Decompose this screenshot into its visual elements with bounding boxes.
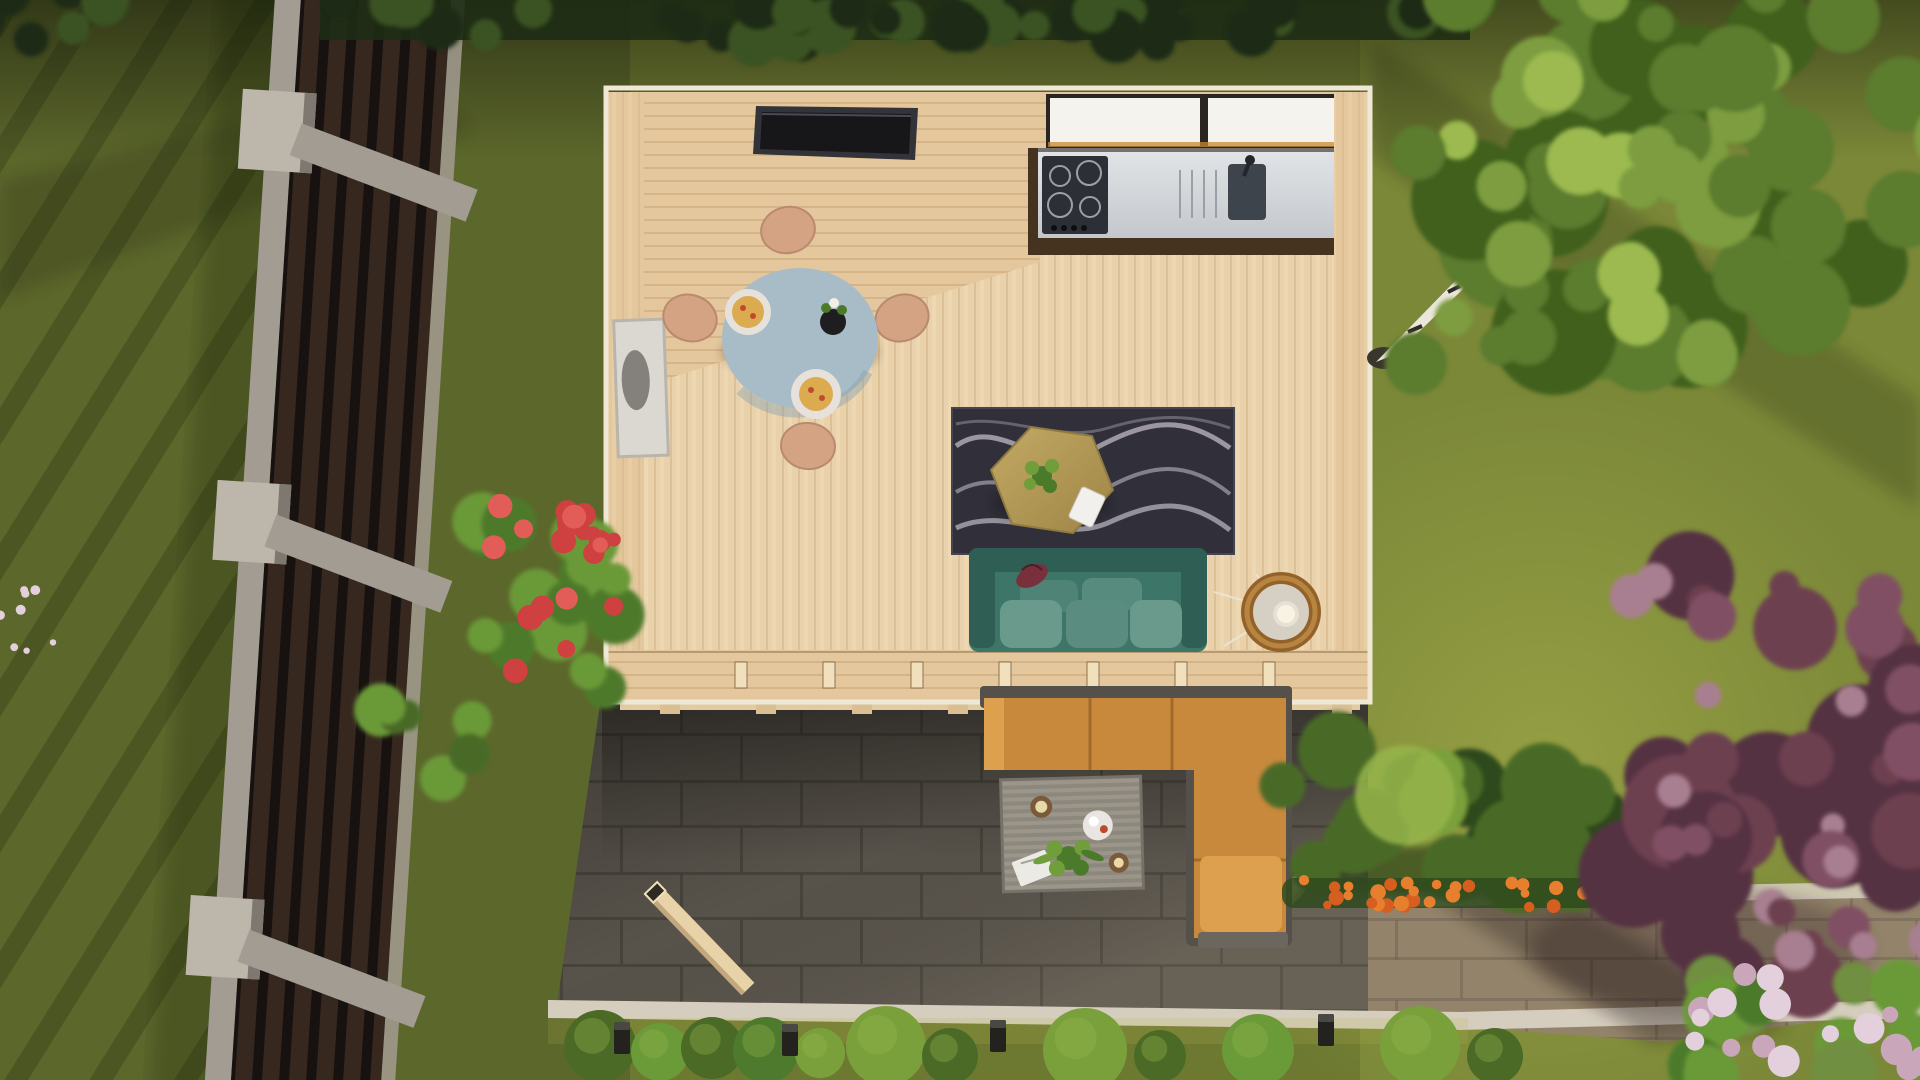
red-bush-leaves — [599, 563, 631, 595]
orange-flower-dots — [1344, 891, 1353, 900]
red-bush-flowers — [503, 658, 528, 683]
purple-tree-highlight-foliage — [1775, 931, 1815, 971]
seat-cushion — [1000, 600, 1062, 648]
hedge-foliage — [470, 19, 502, 51]
door-divider — [823, 662, 835, 688]
bollard-light-top — [990, 1020, 1006, 1028]
potted-plant-leaf — [1024, 478, 1036, 490]
cooktop-knob — [1051, 225, 1057, 231]
hydrangea-blooms — [1707, 988, 1736, 1017]
orange-flower-dots — [1384, 878, 1397, 891]
bush-highlight — [574, 1018, 610, 1054]
kitchen — [1028, 96, 1340, 255]
birch-canopy-leaves — [1771, 189, 1847, 265]
orange-flower-dots — [1394, 896, 1409, 911]
hydrangea-blooms — [1822, 1025, 1839, 1042]
purple-tree-base-foliage — [1753, 586, 1837, 670]
hydrangea-blooms — [1759, 988, 1791, 1020]
hydrangea-blooms — [1854, 1013, 1885, 1044]
bush-highlight — [930, 1034, 958, 1062]
food-topping — [740, 305, 746, 311]
outdoor-sofa-left-arm — [984, 698, 1004, 770]
plate-food — [799, 377, 833, 411]
potted-plant-leaf — [1043, 479, 1057, 493]
conifer-foliage — [1260, 762, 1306, 808]
outdoor-sofa-top-cushions — [988, 698, 1286, 770]
hydrangea-blooms — [1757, 964, 1784, 991]
orange-flower-dots — [1401, 877, 1414, 890]
hedge-foliage — [870, 4, 901, 35]
sofa-backrest — [969, 548, 1207, 572]
purple-tree-highlight-foliage — [1636, 563, 1673, 600]
birch-canopy-shadow-leaves — [1751, 257, 1850, 356]
hedge-foliage — [655, 1, 685, 31]
hedge-foliage — [945, 7, 990, 52]
orange-flower-dots — [1424, 896, 1436, 908]
corner-hedge-foliage — [14, 22, 49, 57]
orange-flower-dots — [1549, 881, 1563, 895]
hedge-foliage — [1020, 11, 1050, 41]
white-wildflowers — [50, 639, 56, 645]
bush-highlight — [690, 1024, 721, 1055]
door-divider — [1175, 662, 1187, 688]
hydrangea-leaves — [1833, 962, 1876, 1005]
bush-highlight — [1141, 1036, 1167, 1062]
side-bushes — [372, 691, 406, 725]
purple-tree-highlight-foliage — [1850, 932, 1877, 959]
orange-flower-dots — [1547, 899, 1561, 913]
window-sill-glint — [1048, 142, 1340, 147]
orange-flower-dots — [1329, 890, 1344, 905]
orange-flower-dots — [1432, 880, 1442, 890]
light-conifer — [1355, 745, 1455, 845]
hydrangea-blooms — [1685, 1032, 1704, 1051]
white-wildflowers — [23, 648, 29, 654]
birch-canopy-leaves — [1638, 6, 1674, 42]
cooktop-knob — [1081, 225, 1087, 231]
hydrangea-blooms — [1733, 963, 1756, 986]
hydrangea-blooms — [1691, 1009, 1709, 1027]
red-bush-leaves — [468, 618, 503, 653]
orange-flower-dots — [1450, 881, 1462, 893]
kitchen-window — [1048, 96, 1340, 148]
cabinet-front-band — [1028, 238, 1340, 255]
tv-screen — [760, 112, 911, 154]
lamp-bulb — [1277, 605, 1295, 623]
bush-highlight — [742, 1024, 775, 1057]
outdoor-table — [1001, 776, 1144, 892]
wicker-base-lip — [1198, 932, 1288, 948]
hedge-foliage — [417, 16, 449, 48]
garden-aerial-render — [0, 0, 1920, 1080]
purple-tree-highlight-foliage — [1695, 682, 1722, 709]
birch-canopy-fringe — [1385, 333, 1447, 395]
white-wildflowers — [10, 643, 18, 651]
bush-highlight — [802, 1034, 827, 1059]
birch-canopy-leaves — [1523, 51, 1583, 111]
purple-tree-highlight-foliage — [1657, 774, 1691, 808]
red-bush-flowers — [531, 596, 555, 620]
red-bush-flowers — [557, 640, 575, 658]
birch-canopy-fringe — [1646, 146, 1702, 202]
hedge-foliage — [1226, 6, 1276, 56]
orange-flower-dots — [1366, 898, 1377, 909]
orange-flower-dots — [1344, 882, 1354, 892]
cooktop — [1042, 156, 1108, 234]
bush-highlight — [1055, 1017, 1097, 1059]
purple-tree-highlight-foliage — [1687, 592, 1736, 641]
orange-flower-dots — [1517, 878, 1530, 891]
purple-tree-highlight-foliage — [1824, 846, 1856, 878]
cooktop-knob — [1071, 225, 1077, 231]
bollard-light-top — [614, 1022, 630, 1030]
red-bush-flowers — [556, 587, 578, 609]
garden-render-stage — [0, 0, 1920, 1080]
purple-tree-highlight-foliage — [1845, 599, 1904, 658]
hydrangea-blooms — [1882, 1007, 1898, 1023]
purple-tree-highlight-foliage — [1767, 898, 1795, 926]
leaning-artwork — [614, 319, 669, 457]
corner-hedge-foliage — [57, 12, 90, 45]
red-bush-flowers — [551, 529, 576, 554]
log-cabin — [606, 88, 1370, 714]
door-divider — [735, 662, 747, 688]
red-bush-flowers — [488, 494, 512, 518]
sofa-armrest-right — [1181, 550, 1207, 648]
red-bush-flowers — [604, 597, 623, 616]
bush-highlight — [857, 1015, 897, 1055]
vase-flower — [829, 298, 839, 308]
door-divider — [1263, 662, 1275, 688]
indoor-sofa — [969, 548, 1207, 652]
bush-highlight — [1232, 1022, 1268, 1058]
white-wildflowers — [30, 585, 40, 595]
potted-plant-leaf — [1025, 461, 1039, 475]
orange-flower-dots — [1524, 902, 1534, 912]
window-mullion — [1200, 96, 1208, 148]
conifer-foliage — [1553, 765, 1615, 827]
purple-tree-highlight-foliage — [1684, 732, 1738, 786]
food-topping — [750, 313, 756, 319]
door-divider — [911, 662, 923, 688]
food-topping — [819, 395, 825, 401]
seat-cushion — [1130, 600, 1182, 648]
birch-canopy-fringe — [1677, 325, 1738, 386]
birch-canopy-fringe — [1391, 125, 1446, 180]
birch-canopy-fringe — [1486, 221, 1552, 287]
side-bushes — [449, 733, 490, 774]
white-wildflowers — [20, 586, 28, 594]
vase-leaf — [837, 305, 847, 315]
hedge-foliage — [1165, 13, 1193, 41]
bollard-light-top — [782, 1024, 798, 1032]
birch-canopy-fringe — [1480, 326, 1519, 365]
orange-flower-dots — [1299, 875, 1309, 885]
bollard-light-top — [1318, 1014, 1334, 1022]
birch-canopy-fringe — [1435, 298, 1473, 336]
plate-food — [732, 296, 764, 328]
red-bush-flowers — [593, 537, 608, 552]
orange-flower-dots — [1506, 877, 1519, 890]
east-wall-planks — [1334, 92, 1368, 700]
birch-canopy-leaves — [1598, 243, 1661, 306]
birch-canopy-fringe — [1709, 155, 1771, 217]
door-divider — [1087, 662, 1099, 688]
bush-highlight — [1391, 1015, 1431, 1055]
potted-plant-leaf — [1045, 459, 1059, 473]
bush-highlight — [1475, 1034, 1503, 1062]
purple-tree-highlight-foliage — [1779, 732, 1834, 787]
door-divider — [999, 662, 1011, 688]
hydrangea-blooms — [1768, 1045, 1800, 1077]
red-bush-flowers — [607, 533, 621, 547]
red-bush-flowers — [482, 535, 506, 559]
white-wildflowers — [16, 605, 26, 615]
purple-tree-highlight-foliage — [1769, 571, 1799, 601]
purple-tree-highlight-foliage — [1653, 825, 1689, 861]
purple-tree-highlight-foliage — [1836, 685, 1867, 716]
purple-tree-highlight-foliage — [1707, 802, 1743, 838]
outdoor-seat-cushion — [1200, 856, 1282, 932]
red-bush-leaves — [570, 653, 607, 690]
birch-canopy-leaves — [1669, 52, 1729, 112]
red-bush-flowers — [562, 505, 586, 529]
counter-back-edge — [1038, 148, 1340, 152]
cooktop-knob — [1061, 225, 1067, 231]
birch-canopy-fringe — [1476, 161, 1526, 211]
wall-tv — [753, 106, 918, 160]
red-bush-flowers — [514, 519, 533, 538]
food-topping — [808, 387, 814, 393]
orange-flower-dots — [1521, 889, 1530, 898]
orange-flower-dots — [1463, 880, 1476, 893]
seat-cushion — [1066, 600, 1128, 648]
bush-highlight — [639, 1029, 668, 1058]
sofa-armrest-left — [969, 550, 995, 648]
hydrangea-blooms — [1722, 1039, 1740, 1057]
